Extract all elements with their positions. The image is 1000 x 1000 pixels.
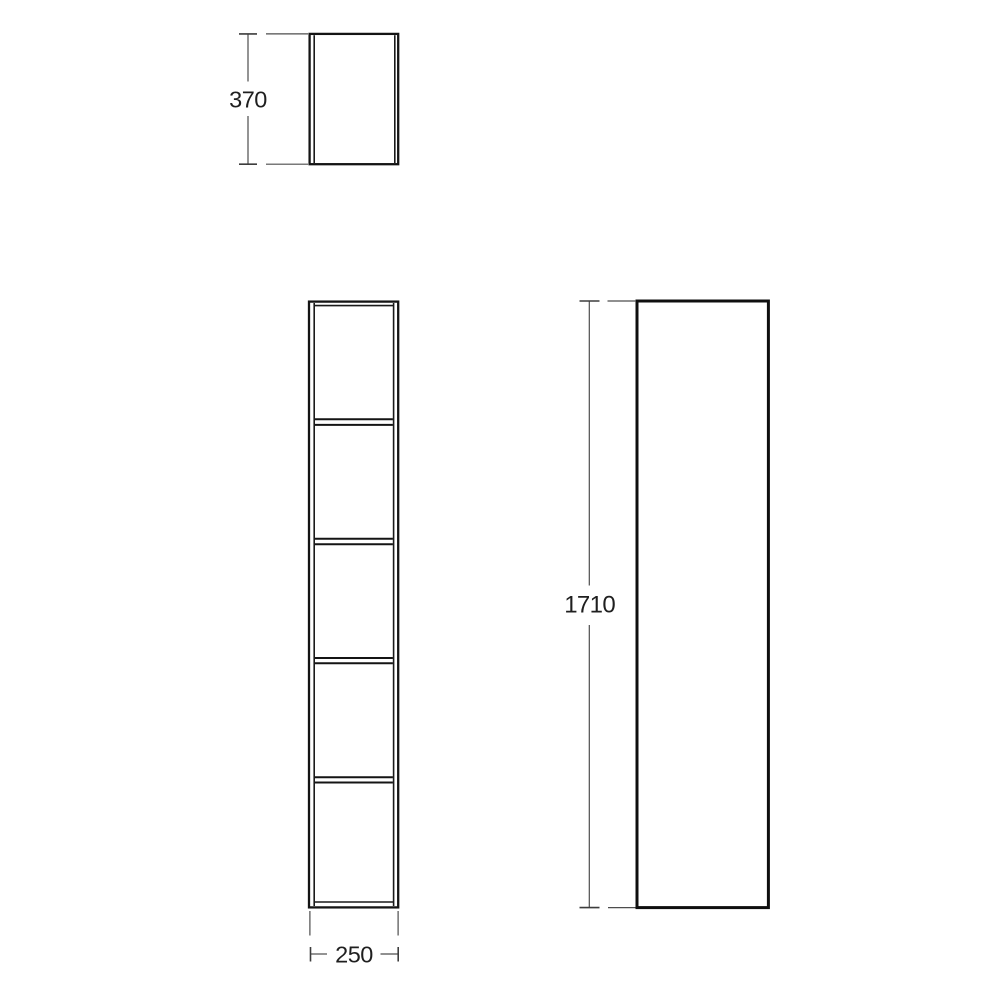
svg-text:370: 370 — [229, 87, 267, 113]
svg-text:250: 250 — [335, 941, 373, 967]
svg-text:1710: 1710 — [564, 592, 615, 619]
